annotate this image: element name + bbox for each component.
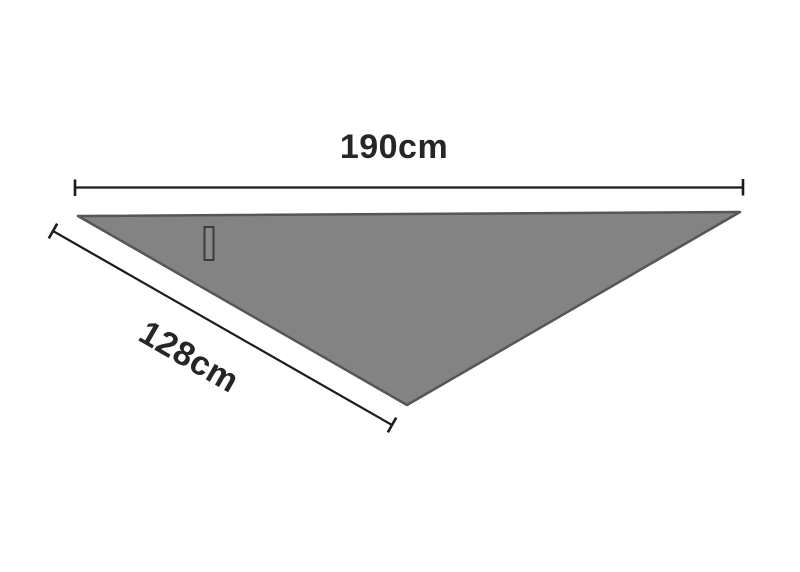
diagram-graphics [0,0,800,572]
top-dimension-line [75,179,743,196]
hang-tag [205,227,214,260]
top-dimension-label: 190cm [340,130,448,164]
triangle-shape [78,212,740,405]
dimension-diagram: 190cm 128cm [0,0,800,572]
